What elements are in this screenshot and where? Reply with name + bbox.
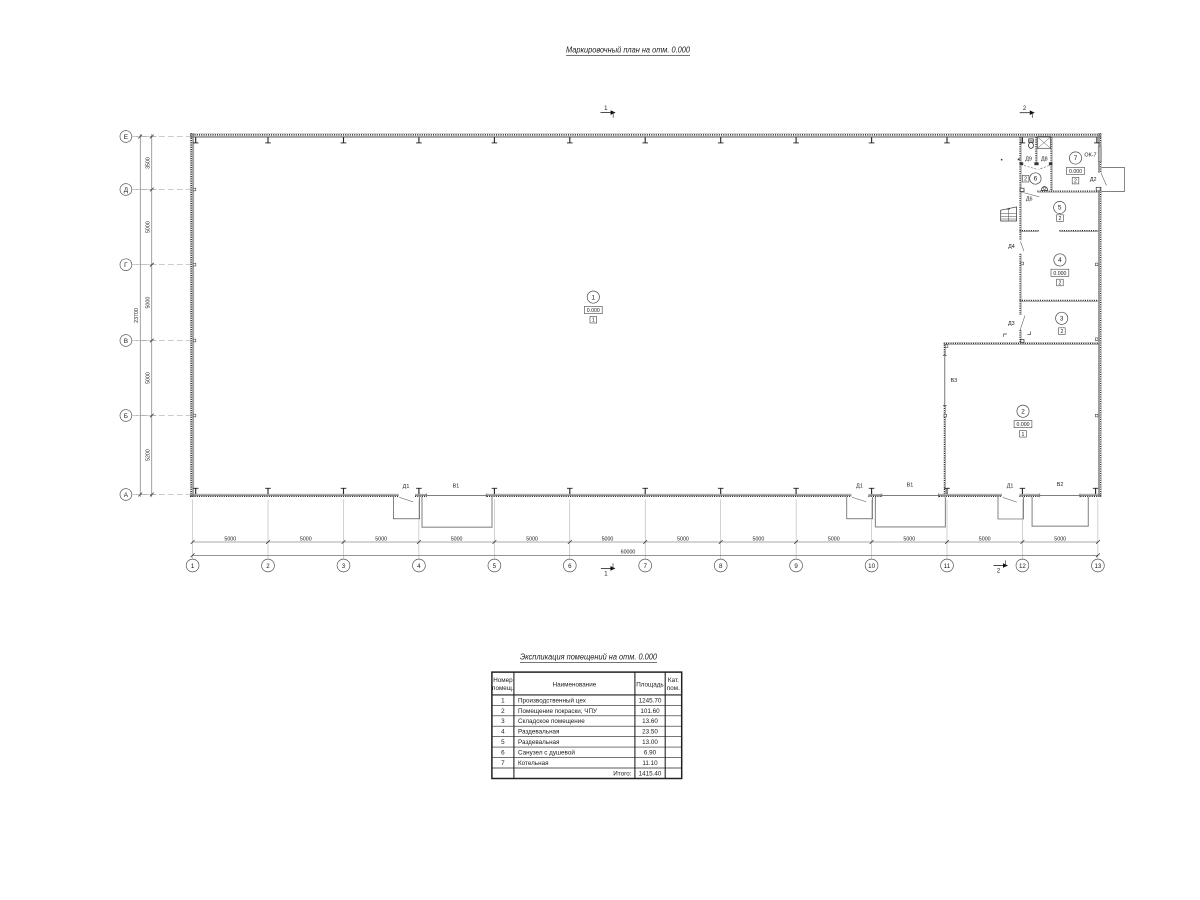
svg-text:3500: 3500 xyxy=(146,157,152,169)
svg-text:0.000: 0.000 xyxy=(1053,271,1066,277)
svg-text:1: 1 xyxy=(1022,432,1025,438)
svg-text:5000: 5000 xyxy=(979,537,991,543)
svg-text:5: 5 xyxy=(493,563,497,570)
svg-text:6: 6 xyxy=(501,750,505,757)
svg-text:1245.70: 1245.70 xyxy=(639,697,662,704)
svg-text:0.000: 0.000 xyxy=(1069,169,1082,175)
svg-text:13: 13 xyxy=(1094,563,1101,570)
svg-text:Д6: Д6 xyxy=(1026,197,1033,203)
svg-text:6.90: 6.90 xyxy=(644,750,657,757)
svg-text:11: 11 xyxy=(944,563,951,570)
svg-text:Кат.: Кат. xyxy=(668,677,679,684)
svg-text:5000: 5000 xyxy=(1054,537,1066,543)
svg-text:Помещение покраски, ЧПУ: Помещение покраски, ЧПУ xyxy=(518,708,598,715)
svg-text:0.000: 0.000 xyxy=(587,308,600,314)
svg-text:1415.40: 1415.40 xyxy=(639,770,662,777)
svg-text:7: 7 xyxy=(1074,155,1078,162)
svg-text:пом.: пом. xyxy=(667,685,680,692)
svg-text:Экспликация помещений на отм.: Экспликация помещений на отм. 0.000 xyxy=(520,653,658,662)
svg-text:Е: Е xyxy=(124,134,128,141)
svg-text:3: 3 xyxy=(1060,316,1064,323)
svg-text:10: 10 xyxy=(868,563,875,570)
svg-text:В: В xyxy=(124,338,128,345)
svg-text:Площадь: Площадь xyxy=(636,682,664,689)
svg-text:4: 4 xyxy=(1058,257,1062,264)
svg-text:12: 12 xyxy=(1019,563,1026,570)
svg-text:1: 1 xyxy=(501,697,505,704)
svg-text:В2: В2 xyxy=(1057,482,1064,488)
svg-text:А: А xyxy=(124,492,129,499)
svg-text:2: 2 xyxy=(1060,329,1063,335)
svg-text:Раздевальная: Раздевальная xyxy=(518,729,559,736)
svg-text:5000: 5000 xyxy=(300,537,312,543)
svg-text:5: 5 xyxy=(1058,205,1062,212)
svg-text:1: 1 xyxy=(592,294,596,301)
svg-text:23.50: 23.50 xyxy=(642,729,658,736)
svg-text:2: 2 xyxy=(1059,216,1062,222)
svg-text:Производственный цех: Производственный цех xyxy=(518,696,587,704)
svg-text:Котельная: Котельная xyxy=(518,760,548,767)
svg-text:0.000: 0.000 xyxy=(1017,422,1030,428)
svg-text:5000: 5000 xyxy=(602,537,614,543)
svg-text:4: 4 xyxy=(501,729,505,736)
svg-text:Итого:: Итого: xyxy=(613,770,632,777)
svg-text:5000: 5000 xyxy=(146,297,152,309)
svg-text:5000: 5000 xyxy=(224,537,236,543)
svg-text:5: 5 xyxy=(501,739,505,746)
svg-text:Санузел с душевой: Санузел с душевой xyxy=(518,749,575,757)
svg-text:5200: 5200 xyxy=(146,449,152,461)
svg-text:Наименование: Наименование xyxy=(553,682,597,689)
svg-text:Д1: Д1 xyxy=(1007,483,1014,489)
svg-text:5000: 5000 xyxy=(526,537,538,543)
svg-text:Д3: Д3 xyxy=(1008,321,1015,327)
svg-text:3: 3 xyxy=(501,718,505,725)
svg-text:Маркировочный план на отм. 0.0: Маркировочный план на отм. 0.000 xyxy=(566,45,690,55)
svg-text:2: 2 xyxy=(1074,179,1077,185)
svg-text:5000: 5000 xyxy=(677,537,689,543)
svg-text:3: 3 xyxy=(342,563,346,570)
svg-text:5000: 5000 xyxy=(375,537,387,543)
svg-text:2: 2 xyxy=(1058,281,1061,287)
svg-text:2: 2 xyxy=(1024,177,1027,183)
svg-text:Д1: Д1 xyxy=(403,484,410,490)
svg-text:5000: 5000 xyxy=(903,537,915,543)
svg-text:Д: Д xyxy=(124,187,129,194)
svg-text:Раздевальная: Раздевальная xyxy=(518,739,559,746)
svg-text:Г: Г xyxy=(124,262,128,269)
svg-text:Номер: Номер xyxy=(493,677,513,684)
svg-text:6: 6 xyxy=(568,563,572,570)
svg-text:4: 4 xyxy=(417,563,421,570)
svg-text:5000: 5000 xyxy=(146,221,152,233)
svg-text:В1: В1 xyxy=(453,484,460,490)
svg-text:Д4: Д4 xyxy=(1008,244,1015,250)
svg-text:13.60: 13.60 xyxy=(642,718,658,725)
svg-text:5000: 5000 xyxy=(828,537,840,543)
svg-text:2: 2 xyxy=(266,563,270,570)
svg-text:5000: 5000 xyxy=(753,537,765,543)
svg-text:Д2: Д2 xyxy=(1090,177,1097,183)
svg-text:2: 2 xyxy=(1021,408,1025,415)
svg-text:Д9: Д9 xyxy=(1025,156,1032,162)
svg-text:2: 2 xyxy=(501,708,505,715)
svg-text:7: 7 xyxy=(643,563,647,570)
svg-text:23700: 23700 xyxy=(134,308,140,323)
svg-text:1: 1 xyxy=(191,563,195,570)
svg-text:В1: В1 xyxy=(907,483,914,489)
svg-text:11.10: 11.10 xyxy=(642,760,658,767)
svg-text:6: 6 xyxy=(1034,176,1038,183)
svg-text:101.60: 101.60 xyxy=(640,708,660,715)
svg-text:7: 7 xyxy=(501,760,505,767)
svg-text:Б: Б xyxy=(124,413,128,420)
svg-text:В3: В3 xyxy=(951,378,958,384)
svg-text:Складское помещение: Складское помещение xyxy=(518,718,585,725)
svg-text:1: 1 xyxy=(592,318,595,324)
svg-text:5000: 5000 xyxy=(146,372,152,384)
svg-text:ОК-7: ОК-7 xyxy=(1084,152,1096,158)
svg-text:помещ.: помещ. xyxy=(492,685,514,692)
svg-text:Д8: Д8 xyxy=(1041,156,1048,162)
svg-text:13.00: 13.00 xyxy=(642,739,658,746)
svg-text:9: 9 xyxy=(794,563,798,570)
svg-text:Д1: Д1 xyxy=(856,484,863,490)
svg-text:5000: 5000 xyxy=(451,537,463,543)
svg-text:8: 8 xyxy=(719,563,723,570)
svg-text:60000: 60000 xyxy=(621,549,636,555)
